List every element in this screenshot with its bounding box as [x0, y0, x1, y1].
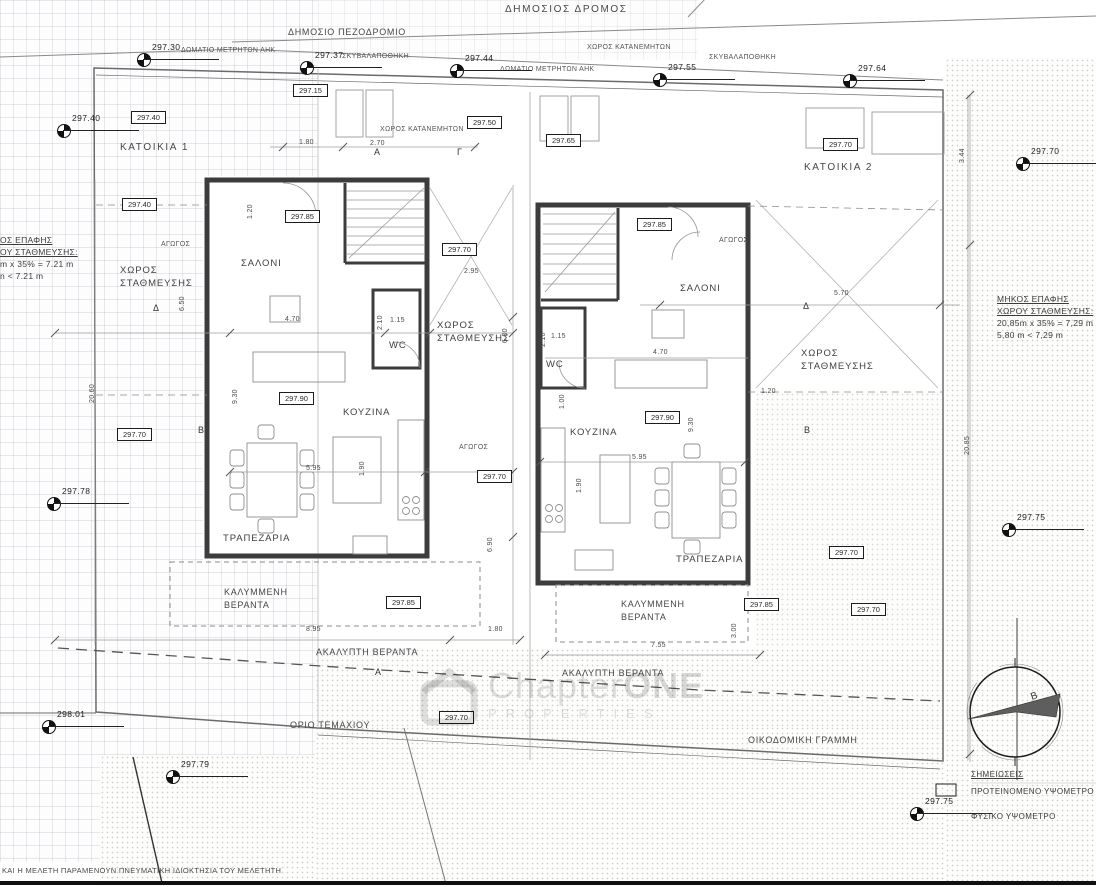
- boxed-elevation: 297.70: [829, 546, 864, 559]
- notes-heading: ΣΗΜΕΙΩΣΕΙΣ: [971, 769, 1096, 780]
- notes-legend: ΣΗΜΕΙΩΣΕΙΣ ΠΡΟΤΕΙΝΟΜΕΝΟ ΥΨΟΜΕΤΡΟ ΦΥΣΙΚΟ …: [971, 769, 1096, 836]
- house2-name: ΚΑΤΟΙΚΙΑ 2: [804, 162, 873, 173]
- house1-name: ΚΑΤΟΙΚΙΑ 1: [120, 142, 189, 153]
- dimension: 9.30: [232, 389, 239, 404]
- house1-dining-label: ΤΡΑΠΕΖΑΡΙΑ: [223, 533, 290, 544]
- public-road-label: ΔΗΜΟΣΙΟΣ ΔΡΟΜΟΣ: [505, 4, 628, 15]
- dimension: 1.20: [761, 388, 776, 395]
- boxed-elevation: 297.70: [439, 711, 474, 724]
- dimension: 2.10: [540, 332, 547, 347]
- legend-proposed-symbol: [936, 784, 956, 796]
- house1-wc-label: WC: [389, 340, 407, 351]
- house2-covered-veranda-label: ΚΑΛΥΜΜΕΝΗ: [621, 599, 685, 609]
- building-line-label: ΟΙΚΟΔΟΜΙΚΗ ΓΡΑΜΜΗ: [748, 735, 858, 745]
- dimension: 6.50: [179, 296, 186, 311]
- house1-kitchen-label: ΚΟΥΖΙΝΑ: [343, 407, 390, 418]
- dimension: 6.90: [487, 537, 494, 552]
- section-marker: B: [804, 425, 810, 435]
- boxed-elevation: 297.15: [293, 84, 328, 97]
- parking-note-right-line4: 5,80 m < 7,29 m: [997, 330, 1063, 340]
- house2-parking-label: ΧΩΡΟΣ: [801, 348, 839, 359]
- notes-proposed-elevation: ΠΡΟΤΕΙΝΟΜΕΝΟ ΥΨΟΜΕΤΡΟ: [971, 786, 1096, 797]
- public-sidewalk-label: ΔΗΜΟΣΙΟ ΠΕΖΟΔΡΟΜΙΟ: [288, 27, 406, 37]
- boxed-elevation: 297.70: [442, 243, 477, 256]
- section-marker: B: [198, 425, 204, 435]
- section-marker: A: [375, 667, 381, 677]
- boxed-elevation: 297.70: [823, 138, 858, 151]
- house1-living-room-label: ΣΑΛΟΝΙ: [241, 258, 282, 269]
- dimension: 7.55: [651, 642, 666, 649]
- floor-plan-sheet: ΔΗΜΟΣΙΟΣ ΔΡΟΜΟΣ ΔΗΜΟΣΙΟ ΠΕΖΟΔΡΟΜΙΟ ΔΩΜΑΤ…: [0, 0, 1096, 887]
- dimension: 9.30: [688, 417, 695, 432]
- house1-covered-veranda-label2: ΒΕΡΑΝΤΑ: [224, 600, 270, 610]
- parking-note-right-line1: ΜΗΚΟΣ ΕΠΑΦΗΣ: [997, 294, 1069, 304]
- boxed-elevation: 297.40: [131, 111, 166, 124]
- boxed-elevation: 297.90: [645, 411, 680, 424]
- dimension-ticks: [51, 91, 974, 758]
- boxed-elevation: 297.85: [637, 218, 672, 231]
- parking-note-right-line3: 20,85m x 35% = 7,29 m: [997, 318, 1093, 328]
- dimension: 5.70: [834, 290, 849, 297]
- house2-wc-label: WC: [546, 359, 564, 370]
- duct-label-3: ΑΓΩΓΟΣ: [719, 237, 748, 244]
- house2-dining-label: ΤΡΑΠΕΖΑΡΙΑ: [676, 554, 743, 565]
- parking-note-right-line2: ΧΩΡΟΥ ΣΤΑΘΜΕΥΣΗΣ:: [997, 306, 1093, 316]
- house1-stairs: [347, 188, 425, 258]
- parking-note-left: ΟΣ ΕΠΑΦΗΣ ΟΥ ΣΤΑΘΜΕΥΣΗΣ: m x 35% = 7.21 …: [0, 234, 78, 282]
- dimension: 2.70: [370, 140, 385, 147]
- house2-walls: [538, 205, 748, 583]
- dimension: 3.00: [731, 623, 738, 638]
- duct-label-1: ΑΓΩΓΟΣ: [161, 241, 190, 248]
- boxed-elevation: 297.85: [386, 596, 421, 609]
- dimension: 4.70: [653, 349, 668, 356]
- plot-boundary-label: ΟΡΙΟ ΤΕΜΑΧΙΟΥ: [290, 720, 370, 730]
- house1-furniture: [230, 296, 424, 554]
- dimension: 1.15: [551, 333, 566, 340]
- dimension: 1.20: [247, 204, 254, 219]
- boxed-elevation: 297.70: [851, 603, 886, 616]
- parking-note-left-line2: ΟΥ ΣΤΑΘΜΕΥΣΗΣ:: [0, 247, 78, 257]
- parking-note-left-line4: n < 7.21 m: [0, 271, 43, 281]
- house1-parking-brace: [430, 188, 512, 325]
- boxed-elevation: 297.65: [546, 134, 581, 147]
- house1-open-veranda-label: ΑΚΑΛΥΠΤΗ ΒΕΡΑΝΤΑ: [316, 647, 418, 657]
- distributor-label-b: ΧΩΡΟΣ ΚΑΤΑΝΕΜΗΤΩΝ: [380, 126, 464, 133]
- house1-covered-veranda-label: ΚΑΛΥΜΜΕΝΗ: [224, 587, 288, 597]
- section-marker: Δ: [803, 301, 809, 311]
- house2-living-room-label: ΣΑΛΟΝΙ: [680, 283, 721, 294]
- parking-note-right: ΜΗΚΟΣ ΕΠΑΦΗΣ ΧΩΡΟΥ ΣΤΑΘΜΕΥΣΗΣ: 20,85m x …: [997, 293, 1093, 341]
- parking-note-left-line3: m x 35% = 7.21 m: [0, 259, 74, 269]
- section-marker: A: [374, 147, 380, 157]
- dimension: 8.95: [306, 626, 321, 633]
- house2-furniture: [541, 310, 736, 570]
- dimension: 1.80: [488, 626, 503, 633]
- distributor-label-a: ΧΩΡΟΣ ΚΑΤΑΝΕΜΗΤΩΝ: [587, 44, 671, 51]
- dimension: 1.00: [559, 394, 566, 409]
- house2-parking-label2: ΣΤΑΘΜΕΥΣΗΣ: [801, 361, 874, 372]
- dimension: 3.44: [959, 148, 966, 163]
- dimension: 5.95: [632, 454, 647, 461]
- house2-kitchen-label: ΚΟΥΖΙΝΑ: [570, 427, 617, 438]
- garbage-store-label-b: ΣΚΥΒΑΛΑΠΟΘΗΚΗ: [709, 54, 776, 61]
- house1-parking-left-label2: ΣΤΑΘΜΕΥΣΗΣ: [120, 278, 193, 289]
- dimension: 20.85: [964, 436, 971, 455]
- boxed-elevation: 297.85: [744, 598, 779, 611]
- boxed-elevation: 297.50: [467, 116, 502, 129]
- section-marker: Δ: [153, 303, 159, 313]
- meter-room-label-a: ΔΩΜΑΤΙΟ ΜΕΤΡΗΤΩΝ ΑΗΚ: [181, 47, 275, 54]
- section-marker: Γ: [457, 147, 462, 157]
- house2-open-veranda-label: ΑΚΑΛΥΠΤΗ ΒΕΡΑΝΤΑ: [562, 668, 664, 678]
- boxed-elevation: 297.90: [279, 392, 314, 405]
- boxed-elevation: 297.40: [122, 198, 157, 211]
- dimension: 4.70: [285, 316, 300, 323]
- house2-stairs: [543, 212, 616, 292]
- dimension: 1.15: [390, 317, 405, 324]
- boxed-elevation: 297.70: [117, 428, 152, 441]
- dimension: 2.95: [464, 268, 479, 275]
- dimension: 20.60: [89, 384, 96, 403]
- dimension-lines: [55, 95, 970, 762]
- house1-parking-right-label2: ΣΤΑΘΜΕΥΣΗΣ: [437, 333, 510, 344]
- dimension: 1.90: [359, 461, 366, 476]
- house1-parking-left-label: ΧΩΡΟΣ: [120, 265, 158, 276]
- compass-icon: [967, 658, 1063, 766]
- dimension: 2.10: [377, 315, 384, 330]
- boxed-elevation: 297.85: [285, 210, 320, 223]
- copyright-note: ΚΑΙ Η ΜΕΛΕΤΗ ΠΑΡΑΜΕΝΟΥΝ ΠΝΕΥΜΑΤΙΚΗ ΙΔΙΟΚ…: [2, 866, 281, 875]
- dimension: 1.90: [576, 478, 583, 493]
- dimension: 5.95: [306, 465, 321, 472]
- house1-parking-right-label: ΧΩΡΟΣ: [437, 320, 475, 331]
- duct-label-2: ΑΓΩΓΟΣ: [459, 444, 488, 451]
- garbage-store-label-a: ΣΚΥΒΑΛΑΠΟΘΗΚΗ: [342, 53, 409, 60]
- notes-natural-elevation: ΦΥΣΙΚΟ ΥΨΟΜΕΤΡΟ: [971, 811, 1096, 822]
- dimension: 1.80: [299, 139, 314, 146]
- house2-covered-veranda-label2: ΒΕΡΑΝΤΑ: [621, 612, 667, 622]
- sheet-edge-bar: [0, 881, 1096, 885]
- parking-note-left-line1: ΟΣ ΕΠΑΦΗΣ: [0, 235, 52, 245]
- boxed-elevation: 297.70: [477, 470, 512, 483]
